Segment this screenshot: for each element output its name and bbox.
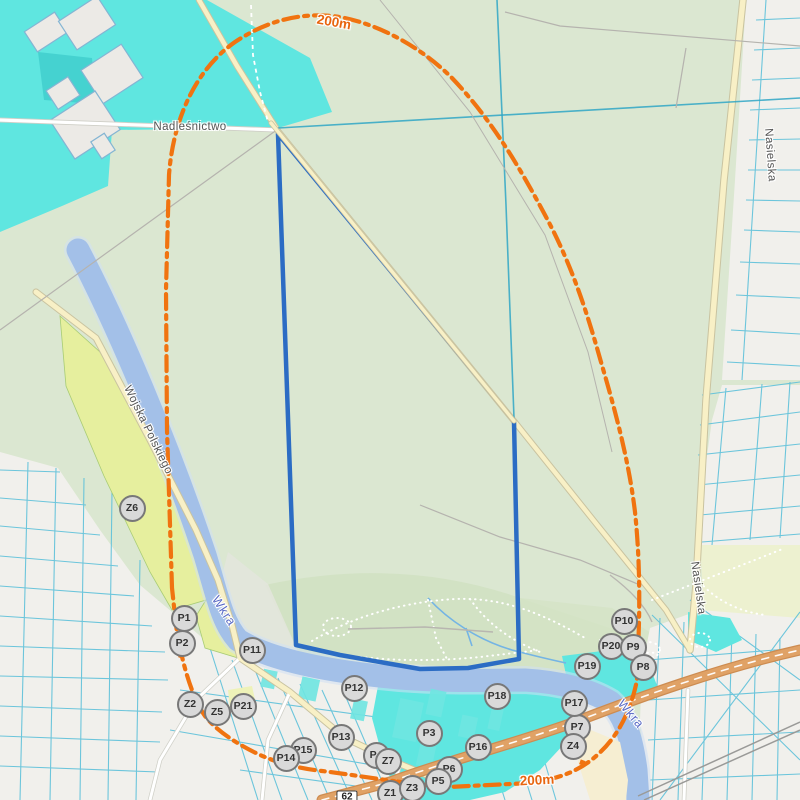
- map-marker-P13[interactable]: P13: [328, 724, 355, 751]
- map-marker-P18[interactable]: P18: [484, 683, 511, 710]
- map-marker-P11[interactable]: P11: [239, 637, 266, 664]
- road-shield: 62: [336, 791, 357, 800]
- map-marker-Z6[interactable]: Z6: [119, 495, 146, 522]
- map-marker-P19[interactable]: P19: [574, 653, 601, 680]
- map-marker-P21[interactable]: P21: [230, 693, 257, 720]
- map-marker-Z3[interactable]: Z3: [399, 775, 426, 800]
- map-art: [0, 0, 800, 800]
- map-marker-P5[interactable]: P5: [425, 768, 452, 795]
- map-marker-P17[interactable]: P17: [561, 690, 588, 717]
- map-marker-P1[interactable]: P1: [171, 605, 198, 632]
- map-marker-P3[interactable]: P3: [416, 720, 443, 747]
- map-marker-P8[interactable]: P8: [630, 654, 657, 681]
- map-marker-P10[interactable]: P10: [611, 608, 638, 635]
- map-marker-P16[interactable]: P16: [465, 734, 492, 761]
- map-marker-Z5[interactable]: Z5: [204, 699, 231, 726]
- street-label: Nadleśnictwo: [153, 121, 226, 133]
- map-marker-P2[interactable]: P2: [169, 630, 196, 657]
- map-marker-Z2[interactable]: Z2: [177, 691, 204, 718]
- map-marker-Z4[interactable]: Z4: [560, 733, 587, 760]
- distance-label: 200m: [519, 772, 554, 789]
- map-canvas[interactable]: NadleśnictwoWojska PolskiegoNasielskaNas…: [0, 0, 800, 800]
- map-marker-P12[interactable]: P12: [341, 675, 368, 702]
- map-marker-P14[interactable]: P14: [273, 745, 300, 772]
- map-marker-Z7[interactable]: Z7: [375, 748, 402, 775]
